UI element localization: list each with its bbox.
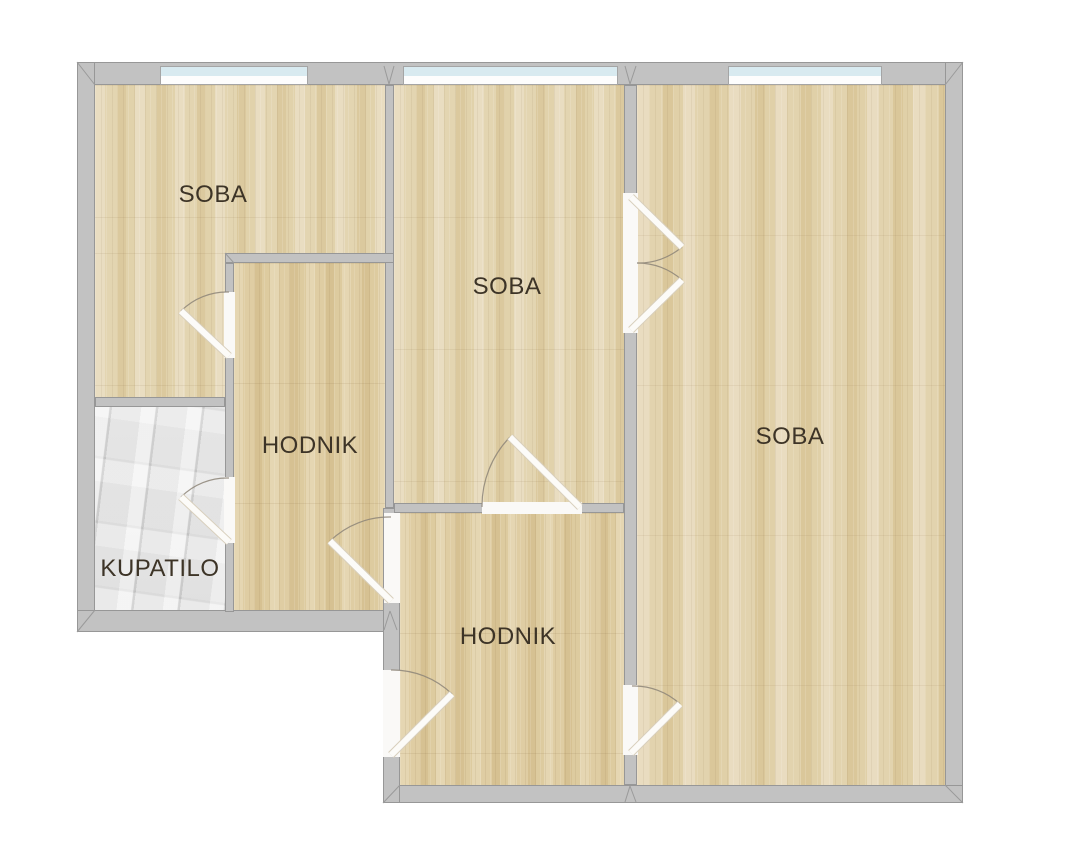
door-opening-hodnik-hodnik — [384, 513, 400, 603]
room-label-soba-middle: SOBA — [473, 273, 542, 301]
door-opening-hodnik-soba-right — [623, 685, 638, 755]
room-label-hodnik-upper: HODNIK — [262, 432, 358, 460]
wall-exterior-right — [945, 62, 963, 803]
wall-between-soba-right — [624, 85, 637, 785]
floor-plan: SOBA SOBA SOBA HODNIK HODNIK KUPATILO — [0, 0, 1083, 854]
floor-soba-top-left-lower — [95, 253, 225, 397]
floor-soba-top-left-upper — [95, 85, 385, 253]
room-label-hodnik-lower: HODNIK — [460, 623, 556, 651]
wall-kupatilo-top — [95, 397, 225, 407]
door-opening-double-soba — [623, 193, 638, 333]
wall-exterior-left — [77, 62, 95, 632]
wall-hodnik-upper-top — [225, 253, 394, 263]
door-opening-entrance — [383, 670, 400, 757]
window-soba-right — [728, 66, 882, 85]
room-label-soba-right: SOBA — [756, 423, 825, 451]
room-label-kupatilo: KUPATILO — [100, 555, 219, 583]
room-label-soba-top-left: SOBA — [179, 181, 248, 209]
door-opening-soba-topleft-hodnik — [224, 292, 235, 358]
wall-exterior-bottom-left — [77, 610, 400, 632]
window-soba-top-left — [160, 66, 308, 85]
wall-exterior-bottom — [383, 785, 963, 803]
wall-between-sobas-left — [385, 85, 394, 508]
door-opening-kupatilo-hodnik — [224, 477, 235, 543]
door-opening-soba-middle-hodnik — [482, 502, 582, 514]
window-soba-middle — [403, 66, 618, 85]
